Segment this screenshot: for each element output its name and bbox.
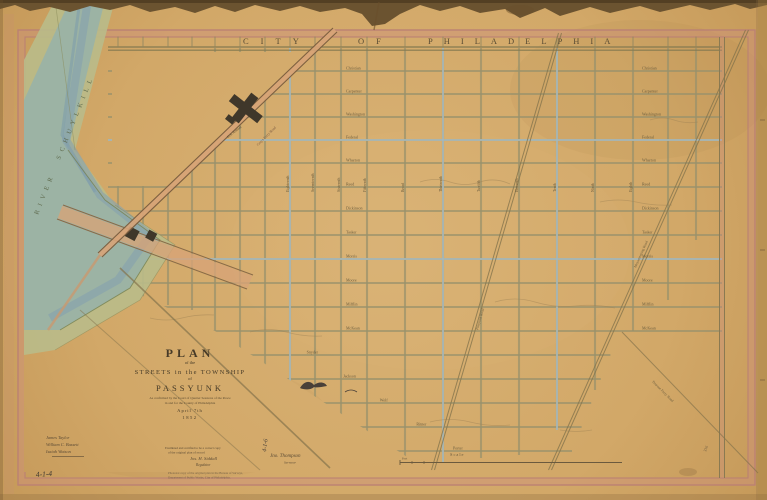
title-plan: PLAN (166, 346, 215, 360)
street-label: Dickinson (346, 206, 362, 211)
street-label: McKean (346, 326, 360, 331)
street-label-vertical: Eleventh (515, 178, 519, 192)
title-passyunk: PASSYUNK (156, 383, 224, 393)
attest-name: Jno. Thompson (270, 454, 301, 459)
street-label: Washington (642, 112, 661, 117)
street-label: Morris (642, 254, 653, 259)
street-label: Wolf (380, 398, 389, 403)
cert-signature-title: Regulator (195, 463, 211, 467)
street-label: Ritner (416, 422, 427, 427)
street-label-vertical: Fifteenth (363, 178, 367, 192)
map-canvas: CITY OF PHILADELPHIA SCHUYLKILL RIVER PL… (0, 0, 767, 500)
title-year: 1852 (182, 415, 197, 420)
street-label: Mifflin (642, 302, 653, 307)
archive-mark: 4-1-4 (36, 469, 53, 479)
left-margin-tint (4, 14, 14, 494)
attest-title: Surveyor (284, 461, 297, 465)
street-label-vertical: Thirteenth (439, 176, 443, 192)
street-label: Washington (346, 112, 365, 117)
title-of-the: of the (185, 360, 195, 365)
street-label: Federal (642, 135, 655, 140)
street-label: Tasker (642, 230, 653, 235)
title-date: April 7th (177, 408, 203, 413)
street-label-vertical: Ninth (591, 183, 595, 192)
street-label-vertical: Twelfth (477, 180, 481, 192)
street-label: Federal (346, 135, 359, 140)
city-band-word: PHILADELPHIA (428, 36, 621, 46)
street-label: Wharton (642, 158, 656, 163)
title-confirm-2: in and for the County of Philadelphia (165, 401, 216, 405)
cert-line: of the original plan of record (168, 451, 205, 455)
title-streets-township: STREETS in the TOWNSHIP (135, 369, 246, 376)
street-label-vertical: Sixteenth (337, 178, 341, 192)
city-band-word: OF (358, 36, 393, 46)
right-boundary-road (720, 37, 725, 478)
street-label: Snyder (307, 350, 319, 355)
street-label-vertical: Seventeenth (311, 173, 315, 192)
street-label-vertical: Eighteenth (286, 175, 290, 192)
street-label: Moore (346, 278, 357, 283)
cert-signature: Jos. H. Siddall (190, 456, 218, 461)
street-label: Reed (346, 182, 354, 187)
street-label: Jackson (343, 374, 356, 379)
street-label-vertical: Eighth (629, 182, 633, 192)
street-label: Tasker (346, 230, 357, 235)
scale-unit: Feet (402, 457, 407, 461)
street-label-vertical: Tenth (553, 183, 557, 192)
commissioner-name: James Taylor (46, 435, 70, 440)
street-label: Mifflin (346, 302, 357, 307)
street-label: Christian (346, 66, 361, 71)
street-label: Moore (642, 278, 653, 283)
street-label: Porter (453, 446, 463, 451)
title-of: of (188, 376, 192, 381)
title-confirm-1: As confirmed by the Court of Quarter Ses… (149, 396, 231, 400)
scale-label: Scale (450, 452, 465, 457)
street-label-vertical: Broad (401, 183, 405, 192)
street-label: Christian (642, 66, 657, 71)
street-label: Dickinson (642, 206, 658, 211)
commissioner-name: Isaiah Watson (45, 449, 72, 454)
street-label: Morris (346, 254, 357, 259)
street-label: Wharton (346, 158, 360, 163)
street-label: Carpenter (346, 89, 362, 94)
street-label: Carpenter (642, 89, 658, 94)
street-label: Reed (642, 182, 650, 187)
cert-line: Examined and certified to be a correct c… (165, 446, 221, 450)
map-scan: CITY OF PHILADELPHIA SCHUYLKILL RIVER PL… (0, 0, 767, 500)
commissioner-name: William C. Bassett (46, 442, 79, 447)
city-band-word: CITY (243, 36, 311, 46)
street-label: McKean (642, 326, 656, 331)
